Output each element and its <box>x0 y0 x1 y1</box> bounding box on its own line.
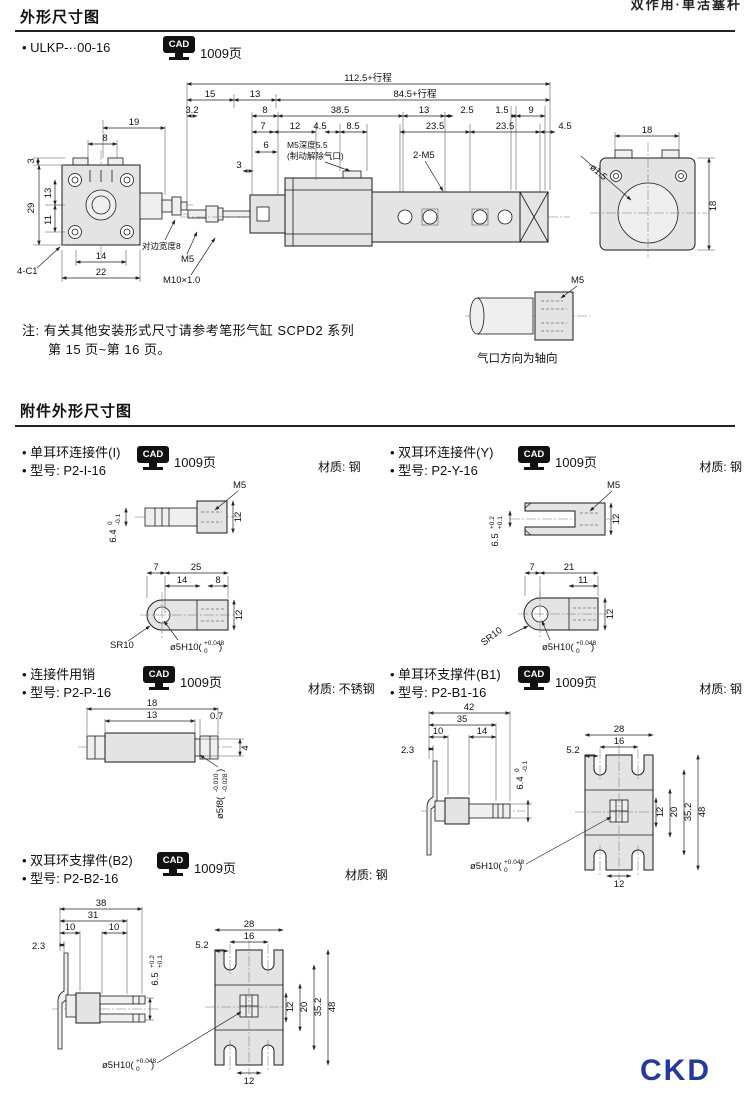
dim-label: 5.2 <box>566 745 579 756</box>
dim-label: 13 <box>43 188 54 199</box>
dim-label: ø5H10( <box>542 642 575 653</box>
dim-label: ) <box>519 861 522 872</box>
dim-label: 29 <box>26 203 37 214</box>
dim-label: 12 <box>234 610 245 621</box>
cad-icon: CAD <box>163 36 195 60</box>
b1-side-view <box>421 761 525 855</box>
dim-label: 38 <box>96 898 107 909</box>
dim-label: 6.5 <box>150 972 161 985</box>
dim-label: SR10 <box>479 625 504 648</box>
dim-label: 16 <box>244 931 255 942</box>
i-connector-drawing: M5 12 6.4 0 -0.1 7 25 14 8 12 SR10 ø5H10… <box>100 478 380 668</box>
block-i-name: • 单耳环连接件(I) <box>22 442 120 461</box>
dim-label: 23.5 <box>496 121 515 132</box>
dim-tol-sup: 0 <box>107 521 114 525</box>
block-b2-name: • 双耳环支撑件(B2) <box>22 850 133 869</box>
cad-page-ref: 1009页 <box>174 452 216 471</box>
section1-rule <box>15 30 735 32</box>
dim-tol-sub: +0.1 <box>497 516 504 529</box>
section2-title: 附件外形尺寸图 <box>20 400 132 421</box>
dim-label: 2.5 <box>460 105 473 116</box>
dim-tol-sup: +0.2 <box>489 516 496 529</box>
cad-icon: CAD <box>137 446 169 470</box>
dim-label: 6.5 <box>490 533 501 546</box>
cad-icon-base <box>149 687 169 690</box>
pin-body <box>78 733 232 762</box>
dim-label: 3 <box>236 160 241 171</box>
y-connector-drawing: M5 12 6.5 +0.2 +0.1 7 21 11 12 SR10 ø5H1… <box>470 478 750 668</box>
dim-label: 3 <box>26 158 37 163</box>
cad-icon-base <box>143 467 163 470</box>
dim-tol-sub: 0 <box>576 648 580 655</box>
dim-label: 12 <box>290 121 301 132</box>
dim-tol-sub: -0.1 <box>522 760 529 772</box>
pin-drawing: 18 13 0.7 4 ø5f8( -0.010 -0.028 ) <box>60 695 350 815</box>
cad-icon: CAD <box>143 666 175 690</box>
dim-label: 8.5 <box>346 121 359 132</box>
dim-label: 6 <box>263 140 268 151</box>
cad-icon: CAD <box>518 446 550 470</box>
dim-label: 4.5 <box>313 121 326 132</box>
b1-front-view <box>575 745 663 880</box>
dim-label: 48 <box>327 1002 338 1013</box>
dim-label: 84.5+行程 <box>393 88 437 100</box>
dim-label: 2.3 <box>401 745 414 756</box>
block-y-material: 材质: 钢 <box>699 458 742 475</box>
dim-label: 22 <box>96 267 107 278</box>
dim-label: 4 <box>240 745 251 750</box>
dim-tol-sup: 0 <box>514 768 521 772</box>
b1-bracket-drawing: 42 35 10 14 2.3 6.4 0 -0.1 28 16 5.2 12 … <box>395 695 745 895</box>
dim-label: 18 <box>642 125 653 136</box>
dim-label: ø5H10( <box>170 642 203 653</box>
dim-label: 14 <box>477 726 488 737</box>
dim-label: 9 <box>528 105 533 116</box>
y-bottom-view <box>518 591 610 638</box>
dim-label: 25 <box>191 562 202 573</box>
cad-page-ref: 1009页 <box>200 43 242 62</box>
page-header-right: 双作用·单活塞杆 <box>631 0 742 13</box>
dim-label: 12 <box>605 609 616 620</box>
cad-icon: CAD <box>518 666 550 690</box>
cad-icon-label: CAD <box>518 666 550 683</box>
b1-dimensions: 42 35 10 14 2.3 6.4 0 -0.1 28 16 5.2 12 … <box>401 702 708 890</box>
dim-label: 28 <box>244 919 255 930</box>
block-b1-name: • 单耳环支撑件(B1) <box>390 664 501 683</box>
cad-icon-label: CAD <box>157 852 189 869</box>
dim-label: 1.5 <box>495 105 508 116</box>
dim-tol-sub: -0.1 <box>115 513 122 525</box>
b2-front-view <box>205 940 293 1075</box>
y-top-view <box>510 503 615 535</box>
dim-label: 12 <box>655 807 666 818</box>
dim-label: 15 <box>205 89 216 100</box>
dim-label: 11 <box>43 215 54 225</box>
dim-label: 18 <box>708 201 719 212</box>
block-i-material: 材质: 钢 <box>318 458 361 475</box>
dim-label: ) <box>591 642 594 653</box>
dim-label: 13 <box>419 105 430 116</box>
dim-tol-sub: -0.028 <box>222 773 229 792</box>
dim-label: 13 <box>250 89 261 100</box>
i-top-view <box>135 501 240 533</box>
section2-rule <box>15 425 735 427</box>
ckd-logo: CKD <box>640 1054 711 1088</box>
dim-label: 0.7 <box>210 711 223 722</box>
dim-label: 12 <box>285 1002 296 1013</box>
dim-label: 14 <box>96 251 107 262</box>
axial-port-detail <box>465 286 590 340</box>
dim-label: ) <box>219 642 222 653</box>
dim-label: 14 <box>177 575 188 586</box>
dim-label: 7 <box>529 562 534 573</box>
dim-label: 10 <box>65 922 76 933</box>
cad-icon-base <box>524 687 544 690</box>
cad-icon-label: CAD <box>143 666 175 683</box>
dim-label: M5 <box>181 254 194 265</box>
dim-label: 28 <box>614 724 625 735</box>
dim-label: ø5f8( <box>215 796 226 819</box>
port-caption: 气口方向为轴向 <box>477 351 558 365</box>
cad-page-ref: 1009页 <box>194 858 236 877</box>
dim-label: ø5H10( <box>102 1060 135 1071</box>
dim-label: 35.2 <box>683 803 694 822</box>
dim-label: 12 <box>611 514 622 525</box>
dim-tol-sup: +0.2 <box>149 955 156 968</box>
dim-label: 38.5 <box>331 105 350 116</box>
dim-label: 11 <box>578 575 588 586</box>
dim-tol-sub: 0 <box>136 1066 140 1073</box>
dim-label: 31 <box>88 910 99 921</box>
dim-tol-sub: 0 <box>204 648 208 655</box>
dim-label: 4.5 <box>558 121 571 132</box>
dim-label: M5深度5.5 <box>287 140 328 150</box>
dim-label: 5.2 <box>195 940 208 951</box>
block-i-model: • 型号: P2-I-16 <box>22 460 106 479</box>
dim-label: 23.5 <box>426 121 445 132</box>
cad-icon-base <box>169 57 189 60</box>
cylinder-side-view <box>180 171 570 246</box>
b2-side-view <box>52 953 160 1049</box>
cad-icon-base <box>524 467 544 470</box>
dim-label: 42 <box>464 702 475 713</box>
dim-label: 8 <box>102 133 107 144</box>
dim-label: 35 <box>457 714 468 725</box>
dim-label: 8 <box>215 575 220 586</box>
cad-icon-base <box>163 873 183 876</box>
dim-label: 2.3 <box>32 941 45 952</box>
cad-icon: CAD <box>157 852 189 876</box>
dim-label: 20 <box>299 1002 310 1013</box>
block-y-model: • 型号: P2-Y-16 <box>390 460 478 479</box>
dim-label: 8 <box>262 105 267 116</box>
dim-label: ø5H10( <box>470 861 503 872</box>
dim-label: ) <box>215 769 226 772</box>
dim-label: 21 <box>564 562 575 573</box>
dim-label: 12 <box>233 512 244 523</box>
note-line1: 注: 有关其他安装形式尺寸请参考笔形气缸 SCPD2 系列 <box>22 320 354 339</box>
dim-label: 18 <box>147 698 158 709</box>
cad-icon-label: CAD <box>137 446 169 463</box>
cad-page-ref: 1009页 <box>555 672 597 691</box>
dim-tol-sub: +0.1 <box>157 955 164 968</box>
dim-label: 2-M5 <box>413 150 435 161</box>
section1-title: 外形尺寸图 <box>20 6 100 27</box>
block-b2-material: 材质: 钢 <box>345 866 388 883</box>
dim-tol-sup: -0.010 <box>213 773 220 792</box>
cad-page-ref: 1009页 <box>555 452 597 471</box>
dim-label: 48 <box>697 807 708 818</box>
dim-label: 对边宽度8 <box>142 241 181 251</box>
note-line2: 第 15 页~第 16 页。 <box>48 339 171 358</box>
dim-label: M5 <box>607 480 620 491</box>
dim-label: 7 <box>153 562 158 573</box>
dim-tol-sub: 0 <box>504 867 508 874</box>
dim-label: 10 <box>109 922 120 933</box>
dim-label: 19 <box>129 117 140 128</box>
i-bottom-view <box>140 592 240 640</box>
dim-label: 6.4 <box>515 776 526 789</box>
dim-label: 10 <box>433 726 444 737</box>
dim-label: M10×1.0 <box>163 275 200 286</box>
dim-label: M5 <box>233 480 246 491</box>
right-end-view <box>590 142 707 258</box>
block-p-name: • 连接件用销 <box>22 664 95 683</box>
dim-label: 112.5+行程 <box>344 72 392 84</box>
model-number: • ULKP-··00-16 <box>22 40 110 55</box>
b2-bracket-drawing: 38 31 10 10 2.3 6.5 +0.2 +0.1 28 16 5.2 … <box>30 895 380 1090</box>
dim-label: M5 <box>571 275 584 286</box>
dim-label: 12 <box>614 879 625 890</box>
dim-label: 3.2 <box>185 105 198 116</box>
dim-label: 35.2 <box>313 998 324 1017</box>
cad-icon-label: CAD <box>163 36 195 53</box>
block-y-name: • 双耳环连接件(Y) <box>390 442 494 461</box>
dim-label: 20 <box>669 807 680 818</box>
cad-page-ref: 1009页 <box>180 672 222 691</box>
dim-label: ) <box>151 1060 154 1071</box>
dim-label: 6.4 <box>108 529 119 542</box>
dim-label: 13 <box>147 710 158 721</box>
dim-label: SR10 <box>110 640 134 651</box>
dim-label: 4-C1 <box>17 266 38 277</box>
dim-label: 12 <box>244 1076 255 1087</box>
dim-label: (制动解除气口) <box>287 151 344 161</box>
block-b2-model: • 型号: P2-B2-16 <box>22 868 118 887</box>
dim-label: 7 <box>260 121 265 132</box>
dim-label: 16 <box>614 736 625 747</box>
cad-icon-label: CAD <box>518 446 550 463</box>
